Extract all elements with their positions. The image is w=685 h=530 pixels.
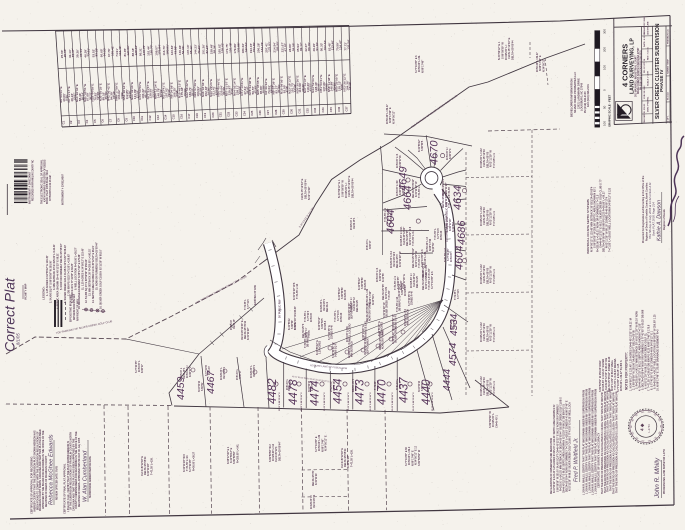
svg-text:DELTA=25°05': DELTA=25°05' — [312, 470, 315, 486]
svg-text:NIP NEW IRON PIN SET: NIP NEW IRON PIN SET — [74, 293, 76, 320]
svg-text:N 88°17'46": N 88°17'46" — [421, 60, 424, 73]
svg-text:R=325.00' L=: R=325.00' L= — [311, 494, 313, 509]
svg-text:C32: C32 — [305, 108, 309, 114]
svg-text:43.98': 43.98' — [173, 46, 177, 55]
svg-text:N 88°17'46" E: N 88°17'46" E — [403, 274, 406, 289]
svg-text:C16: C16 — [179, 113, 183, 119]
svg-text:69.12': 69.12' — [299, 42, 303, 51]
svg-text:50' PUBLIC R/W: 50' PUBLIC R/W — [279, 299, 282, 318]
svg-text:CH=N 45°12'33" E: CH=N 45°12'33" E — [241, 320, 244, 340]
svg-text:C26: C26 — [258, 110, 262, 116]
svg-text:C23: C23 — [234, 111, 238, 117]
svg-text:4574: 4574 — [447, 342, 459, 366]
svg-text:C17: C17 — [187, 113, 191, 119]
svg-text:N 02°11'29: N 02°11'29 — [316, 473, 318, 485]
svg-text:REVIEW OFFICER: REVIEW OFFICER DATE 7/5/05 — [56, 465, 59, 500]
svg-text:N 34°56'12": N 34°56'12" — [392, 111, 395, 124]
svg-text:R/W RIGHT OF WAY: R/W RIGHT OF WAY — [77, 299, 80, 321]
svg-text:I, Peter W. Cook , CERTIFY T: I, Peter W. Cook , CERTIFY THAT THE PLAT… — [67, 441, 70, 512]
svg-text:S 77°41'0: S 77°41'0 — [247, 299, 250, 309]
svg-text:4 ◆: 4 ◆ — [640, 423, 645, 431]
svg-text:175.83': 175.83' — [268, 41, 272, 51]
svg-text:T=71.55': T=71.55' — [388, 290, 391, 300]
svg-text:4474: 4474 — [310, 380, 322, 406]
svg-text:160.77': 160.77' — [150, 45, 154, 55]
svg-text:COUNTY COMMISSIONERS FOR RECOR: COUNTY COMMISSIONERS FOR RECORDING IN TH… — [76, 431, 78, 509]
svg-text:127.56': 127.56' — [126, 45, 130, 55]
svg-text:76.20': 76.20' — [197, 45, 201, 54]
svg-text:S 89°59'59" W 250.00' 54,450: S 89°59'59" W 250.00' 54,450 SQ FT CH=N … — [556, 404, 559, 492]
svg-text:C25: C25 — [250, 110, 254, 116]
svg-text:50.07': 50.07' — [71, 48, 75, 57]
svg-text:S 89°59'59: S 89°59'59 — [362, 277, 364, 289]
svg-text:61.14': 61.14' — [79, 48, 83, 57]
svg-text:4467: 4467 — [205, 369, 217, 394]
svg-text:T=71.55' L=139.: T=71.55' L=139. — [150, 457, 153, 475]
svg-text:C4: C4 — [85, 119, 89, 123]
svg-text:DATE: 6-22-05: DATE: 6-22-05 — [643, 32, 646, 47]
svg-text:113.40': 113.40' — [331, 40, 335, 50]
svg-text:N 88°17': N 88°17' — [370, 240, 372, 249]
svg-text:EXISTING 60' R/W: EXISTING 60' R/W — [255, 284, 257, 305]
svg-text:300: 300 — [603, 29, 607, 34]
svg-text:CERTIFICATE OF FINAL PLAT APPR: CERTIFICATE OF FINAL PLAT APPROVAL — [64, 463, 67, 514]
svg-text:THE ELECTRONIC SEAL OF APPROVA: THE ELECTRONIC SEAL OF APPROVAL — [41, 159, 44, 204]
svg-text:4634: 4634 — [452, 186, 464, 210]
svg-text:11. 1.25 ACRES N 34°56'12" E: 11. 1.25 ACRES N 34°56'12" E 123.45' — [82, 248, 85, 290]
svg-text:54.06': 54.06' — [181, 45, 185, 54]
svg-text:109.41': 109.41' — [221, 43, 225, 53]
svg-text:1.25 ACRES: 1.25 ACRES — [381, 321, 384, 335]
svg-text:N 88°17'46": N 88°17'46" — [449, 218, 452, 231]
svg-text:SEPTIC AREA: SEPTIC AREA — [367, 338, 370, 354]
svg-text:12. 54,450 SQ FT S 89°59'59" W: 12. 54,450 SQ FT S 89°59'59" W 250.00' — [85, 259, 88, 303]
svg-text:THAT THE RATIO OF PRECISION AS: THAT THE RATIO OF PRECISION AS CALCULATE… — [616, 391, 619, 493]
svg-text:C11: C11 — [140, 115, 144, 120]
svg-text:INSTRUMENT # 2005124567: INSTRUMENT # 2005124567 — [62, 173, 65, 205]
svg-text:4454: 4454 — [333, 378, 345, 404]
svg-text:DRAINAGE EAS: DRAINAGE EAS — [365, 321, 368, 339]
svg-text:C3: C3 — [77, 120, 81, 124]
svg-text:CAROLINA AND THAT THIS PLAT HA: CAROLINA AND THAT THIS PLAT HAS BEEN APP… — [72, 438, 75, 511]
svg-text:R=325.00' L=142.31' MIN SETBAC: R=325.00' L=142.31' MIN SETBACK 30' DELT… — [559, 397, 562, 491]
svg-text:94.35': 94.35' — [102, 48, 106, 57]
svg-text:N 34°56': N 34°56' — [382, 273, 385, 282]
svg-text:T=71.55' L=1: T=71.55' L=1 — [395, 275, 397, 290]
svg-text:DWG: PH4-FNL: DWG: PH4-FNL — [647, 96, 650, 112]
svg-text:50.00' S 88°12'44" E: 50.00' S 88°12'44" E — [412, 392, 415, 411]
svg-text:C13: C13 — [156, 115, 160, 121]
svg-text:142.62': 142.62' — [244, 42, 248, 52]
svg-text:4604: 4604 — [454, 246, 466, 270]
svg-text:APPROVED BY THE BOARD FOR RECO: APPROVED BY THE BOARD FOR RECORDING IN T… — [42, 430, 45, 509]
svg-text:S 89°59'59: S 89°59'59 — [342, 287, 344, 299]
svg-text:120.48': 120.48' — [228, 42, 232, 52]
svg-text:INDIVIDUAL ON-SITE SEPTIC SYST: INDIVIDUAL ON-SITE SEPTIC SYSTEMS — [586, 199, 590, 254]
svg-text:T=71.55' L=1: T=71.55' L=1 — [445, 247, 447, 262]
svg-text:CH=N 45°1: CH=N 45°1 — [323, 298, 326, 311]
svg-text:T=71.55' L: T=71.55' L — [455, 289, 457, 300]
svg-text:138.63': 138.63' — [134, 45, 138, 55]
svg-text:C31: C31 — [297, 108, 301, 114]
svg-text:N 02°11'29" W 88.10' SILVER C: N 02°11'29" W 88.10' SILVER CREEK GOLF C… — [569, 402, 572, 491]
svg-text:1.25 ACRES: 1.25 ACRES — [319, 340, 322, 354]
svg-text:83.28': 83.28' — [95, 48, 99, 57]
svg-text:S 77°41'05": S 77°41'05" — [135, 360, 138, 373]
svg-text:4664: 4664 — [402, 186, 414, 210]
svg-text:DELTA=25°05'44": DELTA=25°05'44" — [278, 441, 281, 461]
svg-text:JOB: 04-1332: JOB: 04-1332 — [643, 85, 646, 99]
svg-text:S 89°59'59" W: S 89°59'59" W — [418, 449, 421, 466]
svg-text:N 34°56'12": N 34°56'12" — [338, 287, 341, 300]
svg-text:N 88°17'46: N 88°17'46 — [379, 269, 382, 281]
svg-text:105.42': 105.42' — [110, 46, 114, 56]
svg-text:NC: NC — [631, 425, 633, 429]
svg-text:MIN SETBACK: MIN SETBACK — [407, 309, 410, 325]
svg-text:54,450 SQ FT: 54,450 SQ FT — [395, 314, 398, 329]
svg-text:C24: C24 — [242, 111, 246, 117]
svg-text:PROFESSIONAL LAND SURVEYOR L-: PROFESSIONAL LAND SURVEYOR L-2754 — [663, 448, 666, 494]
svg-text:R=325.00' L=142.: R=325.00' L=142. — [236, 444, 239, 463]
svg-text:S 77°41'05": S 77°41'05" — [397, 276, 400, 289]
svg-text:SILVER CREEK: SILVER CREEK — [387, 300, 389, 317]
svg-text:SCALE 1"=100': SCALE 1"=100' — [647, 70, 650, 86]
svg-text:98.34': 98.34' — [213, 45, 217, 54]
svg-text:13. MIN SETBACK 30' R=325.00': 13. MIN SETBACK 30' R=325.00' L=142.31' — [89, 248, 92, 296]
svg-text:DB 998 PG 01: DB 998 PG 01 — [400, 295, 402, 311]
svg-text:80.19': 80.19' — [307, 42, 311, 51]
svg-text:CERTIFICATE OF APPROVAL FOR RE: CERTIFICATE OF APPROVAL FOR RECORDING — [31, 457, 34, 514]
svg-text:C5: C5 — [93, 119, 97, 123]
svg-text:54,450 SQ FT: 54,450 SQ FT — [335, 342, 338, 357]
svg-text:DELTA=25°05'44: DELTA=25°05'44 — [512, 40, 515, 60]
svg-text:T=71.55' L=13: T=71.55' L=13 — [297, 283, 299, 299]
svg-text:N 02°11'29": N 02°11'29" — [446, 182, 448, 195]
svg-text:2. 54,450 SQ FT S 89°59'59" W: 2. 54,450 SQ FT S 89°59'59" W 250.00' — [50, 260, 53, 303]
svg-text:N 34°56'12: N 34°56'12 — [288, 318, 291, 330]
svg-text:R=325.00' L: R=325.00' L — [251, 365, 253, 378]
svg-text:LEGEND:: LEGEND: — [42, 286, 46, 300]
svg-text:100: 100 — [603, 65, 607, 70]
svg-text:CH=N 45°1: CH=N 45°1 — [353, 217, 356, 229]
svg-text:NOTES FOR PROPERTY:: NOTES FOR PROPERTY: — [624, 352, 628, 390]
svg-text:131.55': 131.55' — [236, 42, 240, 52]
svg-text:C28: C28 — [274, 109, 278, 115]
svg-text:N 34°56'1: N 34°56'1 — [372, 294, 375, 305]
svg-text:PHASE IV: PHASE IV — [659, 69, 665, 92]
svg-text:1 OF 1: 1 OF 1 — [668, 115, 670, 122]
svg-text:SUBDIVISION ADMINISTRATOR: SUBDIVISION ADMINISTRATOR DATE — [89, 456, 92, 498]
svg-text:50: 50 — [603, 105, 607, 109]
svg-text:R=50.00' L: R=50.00' L — [237, 368, 239, 380]
svg-text:W. Alan Cumberland: W. Alan Cumberland — [83, 450, 89, 502]
svg-text:R=325.00': R=325.00' — [231, 319, 233, 330]
svg-text:R=50.00: R=50.00 — [311, 312, 313, 322]
svg-text:KATHY HARRIS REGISTER OF DEEDS: KATHY HARRIS REGISTER OF DEEDS — [43, 159, 46, 202]
svg-text:50.00' S 88°12'44" E: 50.00' S 88°12'44" E — [369, 392, 372, 411]
svg-text:BOOK: PLAT 2005 PAGE: 0214: BOOK: PLAT 2005 PAGE: 0214 — [46, 169, 49, 204]
svg-text:8/1/05: 8/1/05 — [16, 333, 21, 345]
svg-text:DELTA=25°05'44: DELTA=25°05'44 — [244, 320, 247, 339]
svg-text:C33: C33 — [313, 107, 317, 113]
svg-text:R=325.00' L: R=325.00' L — [321, 299, 323, 312]
svg-text:Book PLAT 2005 Page 214: Book PLAT 2005 Page 214 — [652, 202, 656, 236]
svg-text:R=50.00': R=50.00' — [401, 280, 403, 290]
svg-text:C10: C10 — [132, 116, 136, 122]
svg-text:ZONED R-40: ZONED R-40 — [331, 324, 334, 339]
svg-text:Fred P. Whitfield Jr.: Fred P. Whitfield Jr. — [574, 437, 580, 482]
svg-text:50.00' S 88°12'44" E: 50.00' S 88°12'44" E — [347, 392, 350, 411]
svg-text:C12: C12 — [148, 115, 152, 121]
svg-text:C8: C8 — [116, 118, 120, 122]
svg-text:9. WELL LOCATION R=50.00' L=39: 9. WELL LOCATION R=50.00' L=39.27' — [74, 247, 77, 290]
svg-text:R=325.: R=325. — [295, 322, 297, 330]
svg-text:135.54': 135.54' — [346, 39, 350, 49]
svg-text:164.76': 164.76' — [260, 42, 264, 52]
svg-text:REV: 7-18-05: REV: 7-18-05 — [648, 46, 650, 60]
svg-text:124.47': 124.47' — [339, 40, 343, 50]
svg-text:I HEREBY CERTIFY THAT THE SUBD: I HEREBY CERTIFY THAT THE SUBDIVISION PL… — [34, 430, 37, 512]
svg-text:CH=N 45°1: CH=N 45°1 — [495, 415, 498, 428]
svg-text:4686: 4686 — [456, 220, 468, 245]
svg-text:DEVELOPER INFORMATION: DEVELOPER INFORMATION — [570, 79, 574, 117]
svg-text:R=50.00' L=: R=50.00' L= — [187, 365, 189, 378]
svg-text:N 34°56'12" E: N 34°56'12" E — [316, 340, 319, 355]
svg-text:R=50.00' L=3: R=50.00' L=3 — [377, 267, 379, 282]
svg-text:C2: C2 — [69, 120, 73, 124]
svg-text:DELTA=25: DELTA=25 — [356, 299, 359, 312]
svg-text:N 34°56'12": N 34°56'12" — [542, 59, 545, 72]
svg-text:R=50.00' L=39.27: R=50.00' L=39.27 — [192, 451, 195, 471]
svg-text:HARRIS TWSP: HARRIS TWSP — [667, 59, 670, 74]
svg-text:14. SEPTIC AREA SHOWN CH=N 45°: 14. SEPTIC AREA SHOWN CH=N 45°12'33" E 9… — [92, 245, 95, 303]
svg-text:FRANKLIN COUNTY NORTH CAROLINA: FRANKLIN COUNTY NORTH CAROLINA AND THAT … — [39, 429, 42, 511]
svg-text:T=71.55' L=1: T=71.55' L=1 — [493, 380, 496, 396]
svg-text:N 02°11'29" W 8: N 02°11'29" W 8 — [294, 282, 296, 300]
svg-text:L-2754: L-2754 — [647, 424, 651, 433]
svg-text:EIP EXISTING IRON PIPE: EIP EXISTING IRON PIPE — [71, 294, 73, 322]
svg-text:S 77°41'05" E: S 77°41'05" E — [408, 291, 411, 306]
svg-text:DELTA=25°05'44: DELTA=25°05'44 — [352, 178, 355, 198]
svg-text:91.26': 91.26' — [315, 42, 319, 51]
svg-text:S 77°41'05": S 77°41'05" — [447, 248, 450, 261]
svg-text:R=325.00: R=325.00 — [345, 289, 347, 300]
svg-text:R=50.00' L=3: R=50.00' L=3 — [397, 153, 399, 168]
svg-text:CKD BY: JRB: CKD BY: JRB — [648, 21, 650, 35]
svg-text:RECORDED IN FRANKLIN COUNTY NC: RECORDED IN FRANKLIN COUNTY NC — [31, 159, 34, 201]
svg-text:C18: C18 — [195, 113, 199, 119]
svg-text:39.00': 39.00' — [63, 49, 67, 58]
svg-text:50.00' S 88°12'44" E: 50.00' S 88°12'44" E — [391, 392, 394, 411]
svg-text:3. MIN SETBACK 30' R=325.00' L: 3. MIN SETBACK 30' R=325.00' L=142.31' — [53, 244, 56, 290]
svg-text:15. NOW OR FORMERLY DELTA=25°0: 15. NOW OR FORMERLY DELTA=25°05'44" — [96, 242, 99, 290]
svg-text:N 88°17': N 88°17' — [142, 364, 144, 373]
svg-text:4437: 4437 — [399, 377, 411, 403]
svg-text:C21: C21 — [219, 112, 223, 118]
svg-text:R=50.00' L=39.27' 54,450 S: R=50.00' L=39.27' 54,450 S — [620, 360, 623, 391]
svg-text:58.05': 58.05' — [291, 43, 295, 52]
svg-text:MIN SETBACK: MIN SETBACK — [351, 341, 354, 357]
svg-text:10. N 88°17'46" E 175.88' DRA: 10. N 88°17'46" E 175.88' DRAINAGE EASEM… — [656, 329, 659, 391]
svg-text:CH=N 45°12: CH=N 45°12 — [313, 494, 316, 508]
svg-text:R=50.00' L: R=50.00' L — [367, 238, 369, 250]
svg-text:N 02°11'29": N 02°11'29" — [248, 327, 250, 340]
svg-text:C20: C20 — [211, 112, 215, 118]
svg-text:87.27': 87.27' — [205, 45, 209, 54]
svg-text:CH=N 45°: CH=N 45° — [233, 319, 236, 329]
svg-text:OF THE SUBDIVISION REGULATIONS: OF THE SUBDIVISION REGULATIONS OF FRANKL… — [70, 432, 73, 510]
svg-text:7. DB 998 PG 0123 T=71.55' L=: 7. DB 998 PG 0123 T=71.55' L=139.63' — [67, 254, 70, 296]
svg-text:REGISTER OF DEEDS. APPROVED TH: REGISTER OF DEEDS. APPROVED THIS 5th DAY… — [78, 437, 81, 507]
svg-text:4 CORNERS: 4 CORNERS — [621, 44, 630, 87]
svg-text:18°12': 18°12' — [348, 82, 352, 90]
svg-text:R=325.0: R=325.0 — [324, 320, 327, 330]
svg-text:N 34°56': N 34°56' — [432, 242, 435, 252]
svg-text:PH (919) 556-2000 FAX (919) 5: PH (919) 556-2000 FAX (919) 556-2001 — [639, 50, 642, 90]
svg-text:4478: 4478 — [288, 379, 300, 405]
svg-text:N 34°56'1: N 34°56'1 — [452, 221, 455, 232]
svg-text:102.33': 102.33' — [323, 40, 327, 50]
svg-text:WELL LOCATIO: WELL LOCATIO — [349, 323, 352, 341]
svg-text:16. SILVER CREEK GOLF CLUB N 0: 16. SILVER CREEK GOLF CLUB N 02°11'29" W… — [99, 249, 102, 309]
svg-text:C30: C30 — [290, 108, 294, 114]
svg-text:R=50.00' L=: R=50.00' L= — [447, 147, 449, 160]
svg-text:N 34°56'12": N 34°56'12" — [418, 139, 421, 152]
svg-text:N 34°56'12: N 34°56'12 — [198, 380, 201, 392]
svg-text:INSTRUMENT # 2005124567: INSTRUMENT # 2005124567 — [29, 171, 32, 204]
svg-text:N 02°11'29": N 02°11'29" — [308, 186, 311, 200]
svg-text:T=71.55' L=1: T=71.55' L=1 — [493, 210, 496, 226]
svg-text:65.13': 65.13' — [189, 45, 193, 54]
svg-text:47.97': 47.97' — [283, 43, 287, 52]
svg-text:DRAWN BY: KHM: DRAWN BY: KHM — [643, 16, 646, 34]
svg-text:GRAPHIC SCALE - FEET: GRAPHIC SCALE - FEET — [608, 94, 612, 127]
svg-text:TAX PARCEL 018-22: TAX PARCEL 018-22 — [643, 103, 646, 123]
svg-text:C29: C29 — [282, 109, 286, 115]
svg-text:5. NOW OR FORMERLY DELTA=25°05: 5. NOW OR FORMERLY DELTA=25°05'44" — [60, 243, 63, 290]
svg-text:DELTA=2: DELTA=2 — [326, 301, 329, 312]
svg-text:04-1332: 04-1332 — [667, 91, 670, 100]
svg-text:S 89°59'5: S 89°59'5 — [422, 140, 424, 151]
svg-text:C15: C15 — [172, 114, 176, 120]
svg-text:ZONED R-40: ZONED R-40 — [411, 290, 414, 305]
svg-text:T=71.55' L: T=71.55' L — [305, 310, 307, 322]
svg-text:Register of Deeds: Register of Deeds — [663, 209, 666, 230]
svg-text:S 89°59': S 89°59' — [202, 382, 204, 391]
svg-text:4473: 4473 — [355, 379, 367, 405]
svg-text:6. SILVER CREEK GOLF CLUB N 02: 6. SILVER CREEK GOLF CLUB N 02°11'29" W … — [64, 244, 67, 303]
svg-text:DECLARATION OF OWNERSHIP AND D: DECLARATION OF OWNERSHIP AND DEDICATION — [550, 438, 553, 494]
svg-text:50.00' S 88°12'44" E: 50.00' S 88°12'44" E — [300, 392, 303, 411]
svg-text:N 88°17'46: N 88°17'46 — [399, 155, 402, 167]
svg-text:4470: 4470 — [377, 379, 389, 405]
svg-text:R=50.00: R=50.00 — [340, 312, 343, 322]
svg-text:CH=N 45°12'3: CH=N 45°12'3 — [393, 251, 396, 267]
svg-text:N 34°56'12": N 34°56'12" — [358, 277, 361, 290]
svg-text:4670: 4670 — [429, 140, 441, 165]
svg-text:S 77°41'05" E 6: S 77°41'05" E 6 — [431, 271, 434, 289]
svg-text:72.21': 72.21' — [87, 48, 91, 57]
svg-text:N 88°17'46" E: N 88°17'46" E — [362, 325, 365, 340]
svg-text:C35: C35 — [329, 107, 333, 113]
svg-text:DELTA=25°0: DELTA=25°0 — [396, 254, 399, 268]
svg-text:4534: 4534 — [449, 313, 460, 336]
svg-text:4604: 4604 — [385, 210, 397, 234]
svg-text:John R. Mhilly: John R. Mhilly — [654, 457, 661, 499]
svg-text:116.49': 116.49' — [118, 46, 122, 56]
svg-text:C36: C36 — [337, 106, 341, 112]
svg-text:R=325.00' L=14: R=325.00' L=14 — [348, 341, 351, 358]
svg-text:T=71.55': T=71.55' — [449, 186, 451, 196]
svg-text:T=71.55' L=13: T=71.55' L=13 — [412, 229, 415, 246]
svg-text:FRANKLIN CO.: FRANKLIN CO. — [667, 28, 670, 44]
svg-text:N 02°11'29" W: N 02°11'29" W — [400, 251, 402, 267]
svg-text:4444: 4444 — [442, 368, 453, 391]
svg-text:4440: 4440 — [421, 379, 433, 405]
svg-text:C9: C9 — [124, 118, 128, 122]
svg-text:C19: C19 — [203, 112, 207, 118]
svg-text:DELTA=25°05'44" NOW OR FORMERL: DELTA=25°05'44" NOW OR FORMERLY T=71.55'… — [566, 400, 569, 492]
svg-text:R=50.00: R=50.00 — [440, 230, 443, 240]
svg-text:S 89°59': S 89°59' — [292, 320, 294, 329]
svg-text:186.90': 186.90' — [276, 41, 280, 51]
svg-text:R=325.00' L: R=325.00' L — [221, 367, 223, 380]
svg-text:N 34°56'12" E: N 34°56'12" E — [325, 435, 328, 451]
svg-text:R=325.00' L=14: R=325.00' L=14 — [390, 251, 393, 268]
svg-text:NC: NC — [659, 425, 661, 429]
svg-text:N 34°56'12" E 123.45' 1.25 AC: N 34°56'12" E 123.45' 1.25 ACRES R=325.0… — [553, 404, 556, 493]
svg-text:Rebecca McGhee Edwards: Rebecca McGhee Edwards — [49, 434, 55, 505]
svg-text:T=71.55' L=: T=71.55' L= — [419, 185, 421, 198]
svg-text:C34: C34 — [321, 107, 325, 113]
svg-text:BEEN FOUND TO COMPLY WITH THE: BEEN FOUND TO COMPLY WITH THE SUBDIVISIO… — [36, 431, 39, 510]
svg-text:200: 200 — [603, 47, 607, 52]
svg-text:T=71.55': T=71.55' — [428, 268, 431, 278]
svg-text:T=71.55' L=1: T=71.55' L=1 — [493, 268, 496, 284]
svg-text:DELTA=25: DELTA=25 — [416, 275, 419, 288]
svg-text:C37: C37 — [345, 106, 349, 112]
svg-text:R=50.00' L=39: R=50.00' L=39 — [447, 216, 449, 232]
svg-text:R=50.00' L: R=50.00' L — [139, 360, 141, 372]
svg-text:T=71.55' L: T=71.55' L — [245, 299, 247, 310]
svg-text:4482: 4482 — [267, 378, 279, 404]
svg-text:VICINITY MAP: VICINITY MAP — [25, 283, 28, 300]
svg-text:REGISTER OF DEEDS OF FRANKLIN: REGISTER OF DEEDS OF FRANKLIN COUNTY — [45, 455, 48, 507]
svg-text:T=71.55' L=139.: T=71.55' L=139. — [350, 449, 353, 467]
svg-text:C14: C14 — [164, 114, 168, 120]
svg-text:C7: C7 — [109, 118, 113, 122]
svg-text:R=325.00' L=14: R=325.00' L=14 — [404, 309, 407, 326]
svg-text:T=71.55' L=139.63' WELL LOCAT: T=71.55' L=139.63' WELL LOCATION N 34°56… — [608, 187, 611, 252]
svg-text:149.70': 149.70' — [142, 45, 146, 55]
svg-text:50.00' S 88°12'44" E: 50.00' S 88°12'44" E — [323, 392, 326, 411]
svg-text:C22: C22 — [227, 111, 231, 117]
svg-text:N 88°17': N 88°17' — [240, 370, 242, 379]
svg-text:N 34°56'12" E: N 34°56'12" E — [378, 321, 381, 336]
svg-text:C1: C1 — [61, 120, 65, 124]
svg-text:FB: 221 PG 14: FB: 221 PG 14 — [643, 58, 646, 73]
svg-text:301 MAXWELL INDUSTRIAL COURT: 301 MAXWELL INDUSTRIAL COURT — [635, 55, 638, 97]
svg-text:S 77°41'0: S 77°41'0 — [457, 289, 460, 299]
svg-text:4459: 4459 — [175, 376, 187, 400]
svg-text:T=71.55' L=1: T=71.55' L=1 — [493, 152, 496, 168]
svg-text:FAX (919) 496-2101: FAX (919) 496-2101 — [587, 83, 590, 107]
svg-text:1. 1.25 ACRES N 34°56'12" E 1: 1. 1.25 ACRES N 34°56'12" E 123.45' — [46, 255, 49, 296]
svg-text:T=71.55' L=1: T=71.55' L=1 — [493, 326, 496, 342]
svg-text:CH=N 45°12'33" E 98.21' SEPTIC: CH=N 45°12'33" E 98.21' SEPTIC AREA SHOW… — [563, 404, 566, 493]
svg-text:DELTA=25°05'4: DELTA=25°05'4 — [442, 179, 445, 196]
svg-text:R=325.00: R=325.00 — [365, 279, 367, 290]
